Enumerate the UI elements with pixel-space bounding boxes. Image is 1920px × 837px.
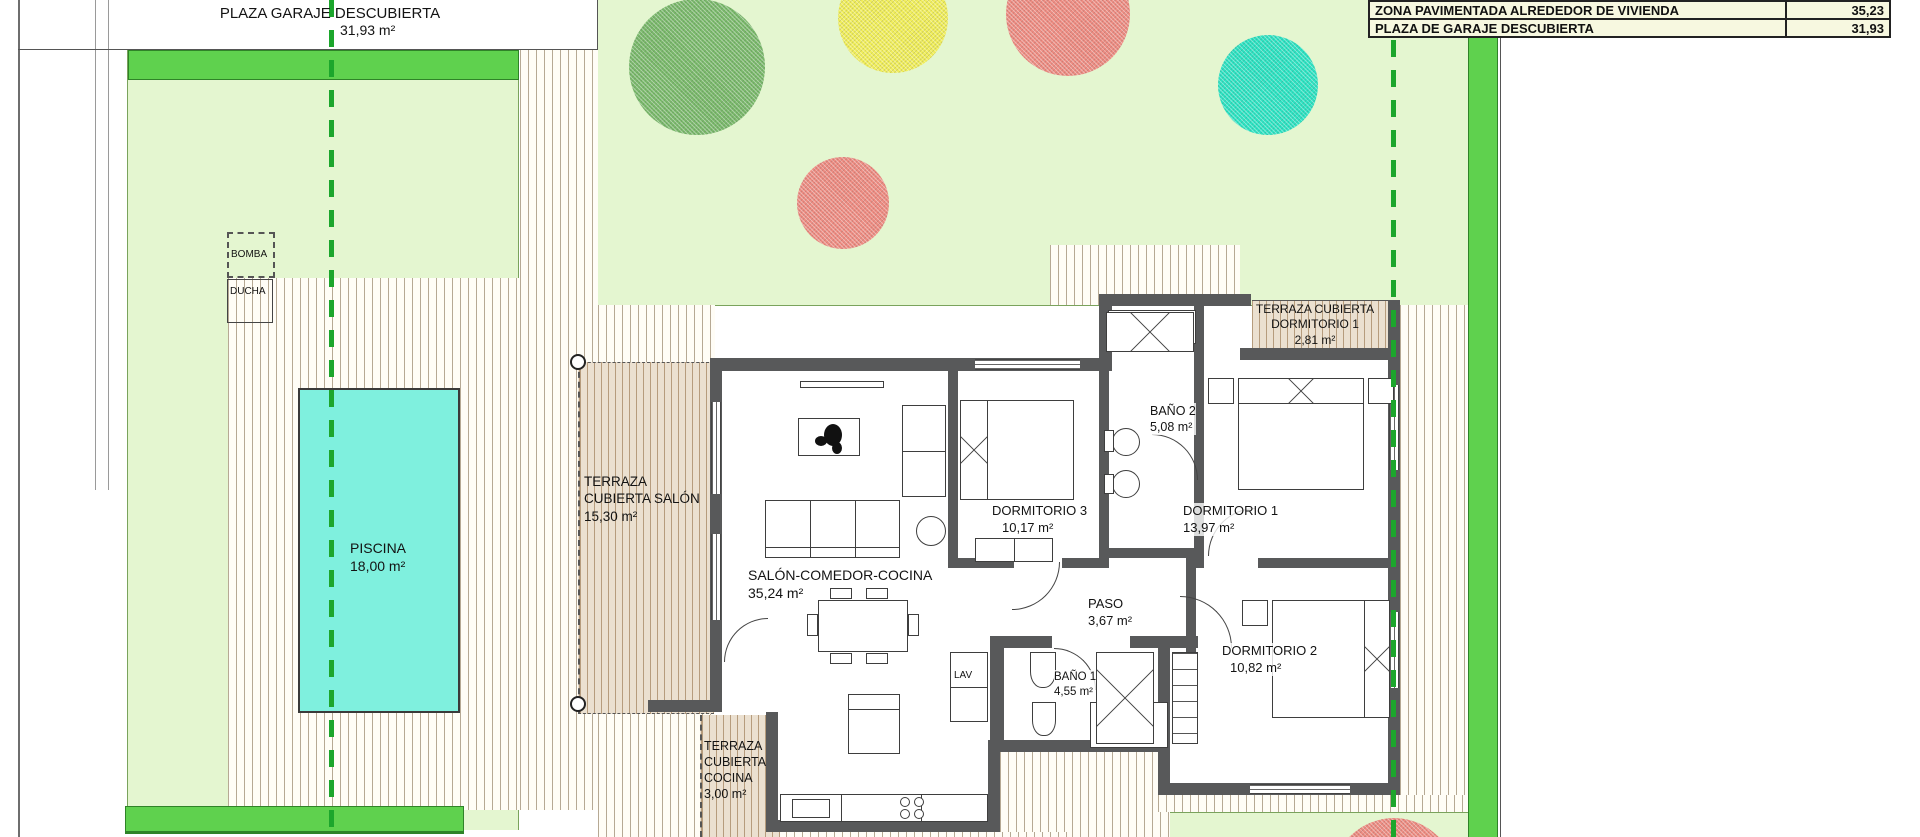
terrace-dorm1-label: TERRAZA CUBIERTA DORMITORIO 1 2,81 m² <box>1242 302 1388 348</box>
living-name: SALÓN-COMEDOR-COCINA <box>748 567 932 585</box>
table-row-value: 35,23 <box>1786 1 1890 19</box>
side-table <box>916 516 946 546</box>
dorm2-label: DORMITORIO 2 10,82 m² <box>1222 643 1317 676</box>
dining-chair <box>830 653 852 664</box>
kitchen-sink <box>792 799 830 818</box>
wall-dorm1-bottom-b <box>1258 558 1400 568</box>
pillow-dorm1 <box>1238 378 1364 404</box>
pump-box: BOMBA <box>227 232 275 278</box>
pillow-dorm2 <box>1364 600 1390 718</box>
floor-plan: BOMBA DUCHA <box>0 0 1920 837</box>
window-dorm3-top <box>975 359 1080 370</box>
pool-area: 18,00 m² <box>350 558 406 576</box>
plot-left-border <box>18 0 20 837</box>
garage-name: PLAZA GARAJE DESCUBIERTA <box>220 5 440 22</box>
terrace-living-area: 15,30 m² <box>584 508 700 525</box>
tree-red-small <box>797 157 889 249</box>
wall-bath2-top <box>1099 294 1251 306</box>
dorm2-area: 10,82 m² <box>1222 660 1317 677</box>
table-row-label: PLAZA DE GARAJE DESCUBIERTA <box>1369 19 1786 37</box>
plot-right-border <box>1500 37 1501 837</box>
window-dorm2-bottom <box>1250 784 1350 794</box>
dining-table <box>818 600 908 652</box>
wall-bath2-bottom <box>1099 548 1204 558</box>
garage-area: 31,93 m² <box>340 22 395 40</box>
pool-name: PISCINA <box>350 540 406 558</box>
terrace-dorm1-area: 2,81 m² <box>1242 333 1388 348</box>
window-living-2 <box>711 534 721 620</box>
paving-east-of-house <box>1400 305 1468 795</box>
table-row-value: 31,93 <box>1786 19 1890 37</box>
wall-dorm3-bath2 <box>1099 371 1109 558</box>
hedge-top <box>128 50 519 80</box>
dorm3-label: DORMITORIO 3 10,17 m² <box>992 503 1087 536</box>
nightstand-dorm2 <box>1242 600 1268 626</box>
sofa <box>765 500 900 558</box>
dorm3-name: DORMITORIO 3 <box>992 503 1087 520</box>
terrace-kitchen-line2: CUBIERTA <box>704 754 766 770</box>
bath2-bidet-base <box>1104 474 1114 494</box>
pool-label: PISCINA 18,00 m² <box>350 540 406 576</box>
dorm3-area: 10,17 m² <box>992 520 1087 537</box>
table-row: ZONA PAVIMENTADA ALREDEDOR DE VIVIENDA 3… <box>1369 1 1890 19</box>
tv-unit <box>798 418 860 456</box>
laundry-unit <box>950 652 988 722</box>
wall-bath1-top-a <box>990 636 1052 648</box>
dining-chair <box>866 653 888 664</box>
dorm1-name: DORMITORIO 1 <box>1183 503 1278 520</box>
terrace-dorm1-line2: DORMITORIO 1 <box>1242 317 1388 332</box>
plant-icon <box>799 419 861 457</box>
paving-south-kitchen <box>778 832 1068 837</box>
dorm1-label: DORMITORIO 1 13,97 m² <box>1183 503 1278 536</box>
terrace-kitchen-line1: TERRAZA <box>704 738 766 754</box>
dorm1-area: 13,97 m² <box>1183 520 1278 537</box>
terrace-living-label: TERRAZA CUBIERTA SALÓN 15,30 m² <box>584 473 700 525</box>
bath1-name: BAÑO 1 <box>1054 670 1096 685</box>
laundry-label: LAV <box>954 670 972 683</box>
hall-area: 3,67 m² <box>1088 613 1132 630</box>
pillow-dorm3 <box>960 400 988 500</box>
table-row: PLAZA DE GARAJE DESCUBIERTA 31,93 <box>1369 19 1890 37</box>
nightstand-dorm1 <box>1208 378 1234 404</box>
table-row-label: ZONA PAVIMENTADA ALREDEDOR DE VIVIENDA <box>1369 1 1786 19</box>
wardrobe-top <box>1106 312 1194 352</box>
hall-label: PASO 3,67 m² <box>1088 596 1132 629</box>
tree-green <box>629 0 765 135</box>
wall-bath1-left <box>990 640 1004 752</box>
bath1-bidet <box>1032 702 1056 736</box>
shower-label: DUCHA <box>230 286 266 299</box>
terrace-living-line2: CUBIERTA SALÓN <box>584 490 700 507</box>
wall-dorm3-hall-b <box>1062 558 1109 568</box>
bath1-area: 4,55 m² <box>1054 685 1096 700</box>
paving-south-dorm2 <box>1158 795 1468 812</box>
margin-line-1 <box>95 0 96 490</box>
bath2-toilet <box>1112 428 1140 456</box>
wall-terrace-stub <box>648 700 722 712</box>
margin-line-2 <box>108 0 109 490</box>
living-area: 35,24 m² <box>748 585 932 603</box>
wall-kitchen-left <box>766 712 778 832</box>
dorm2-name: DORMITORIO 2 <box>1222 643 1317 660</box>
boundary-line-left <box>329 0 334 837</box>
pump-label: BOMBA <box>231 249 267 262</box>
dining-chair <box>908 614 919 636</box>
shelving-unit <box>1172 652 1198 744</box>
bath1-toilet <box>1030 652 1056 688</box>
bath2-name: BAÑO 2 <box>1150 403 1196 419</box>
garage-label: PLAZA GARAJE DESCUBIERTA <box>150 4 510 23</box>
bath2-bidet <box>1112 470 1140 498</box>
hall-name: PASO <box>1088 596 1132 613</box>
bath1-label: BAÑO 1 4,55 m² <box>1054 670 1096 699</box>
stove-burner <box>914 797 924 807</box>
stove-burner <box>900 797 910 807</box>
living-window-niche <box>800 381 884 388</box>
area-summary-table: ZONA PAVIMENTADA ALREDEDOR DE VIVIENDA 3… <box>1368 0 1891 38</box>
stove-burner <box>914 809 924 819</box>
armchair <box>848 694 900 754</box>
hedge-bottom-left <box>125 806 464 834</box>
terrace-kitchen-area: 3,00 m² <box>704 786 766 802</box>
bath2-cistern <box>1104 430 1114 452</box>
shower-box: DUCHA <box>227 279 273 323</box>
tree-teal <box>1218 35 1318 135</box>
terrace-column-top <box>570 354 586 370</box>
wardrobe-hall <box>1096 652 1154 744</box>
paving-south-bath1 <box>1000 752 1170 837</box>
window-living-1 <box>711 402 721 494</box>
terrace-kitchen-line3: COCINA <box>704 770 766 786</box>
wall-living-dorm3 <box>948 371 958 567</box>
terrace-dorm1-line1: TERRAZA CUBIERTA <box>1242 302 1388 317</box>
dining-chair <box>807 614 818 636</box>
wall-dorm1-top <box>1240 348 1400 360</box>
terrace-column-bottom <box>570 696 586 712</box>
hedge-right <box>1468 37 1498 837</box>
wall-kitchen-right <box>988 740 1000 832</box>
terrace-kitchen-label: TERRAZA CUBIERTA COCINA 3,00 m² <box>704 738 766 802</box>
terrace-living <box>578 362 714 714</box>
bath2-label: BAÑO 2 5,08 m² <box>1150 403 1196 435</box>
stove-burner <box>900 809 910 819</box>
dresser-dorm3 <box>975 538 1053 562</box>
bath2-area: 5,08 m² <box>1150 419 1196 435</box>
sideboard <box>902 405 946 497</box>
terrace-living-line1: TERRAZA <box>584 473 700 490</box>
living-label: SALÓN-COMEDOR-COCINA 35,24 m² <box>748 567 932 603</box>
boundary-line-right <box>1391 40 1396 837</box>
